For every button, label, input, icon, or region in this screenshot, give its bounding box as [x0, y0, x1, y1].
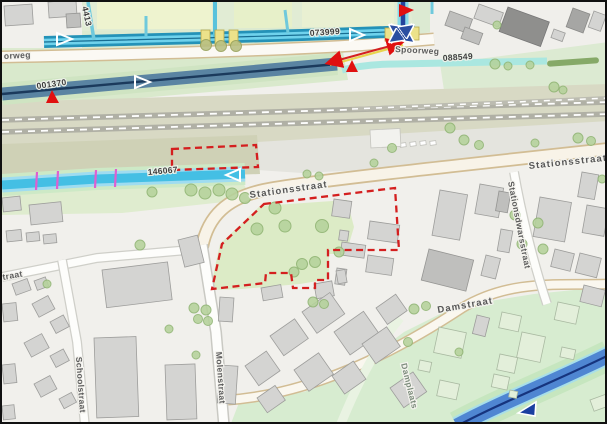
map-canvas[interactable]: orweg 4413 001370 073999 Spoorweg 088549… — [2, 2, 607, 424]
map-viewport[interactable]: orweg 4413 001370 073999 Spoorweg 088549… — [0, 0, 607, 424]
waterway-id-073999: 073999 — [309, 26, 340, 38]
waterway-id-088549: 088549 — [442, 51, 473, 63]
street-label-spoorweg-partial: orweg — [4, 50, 32, 61]
